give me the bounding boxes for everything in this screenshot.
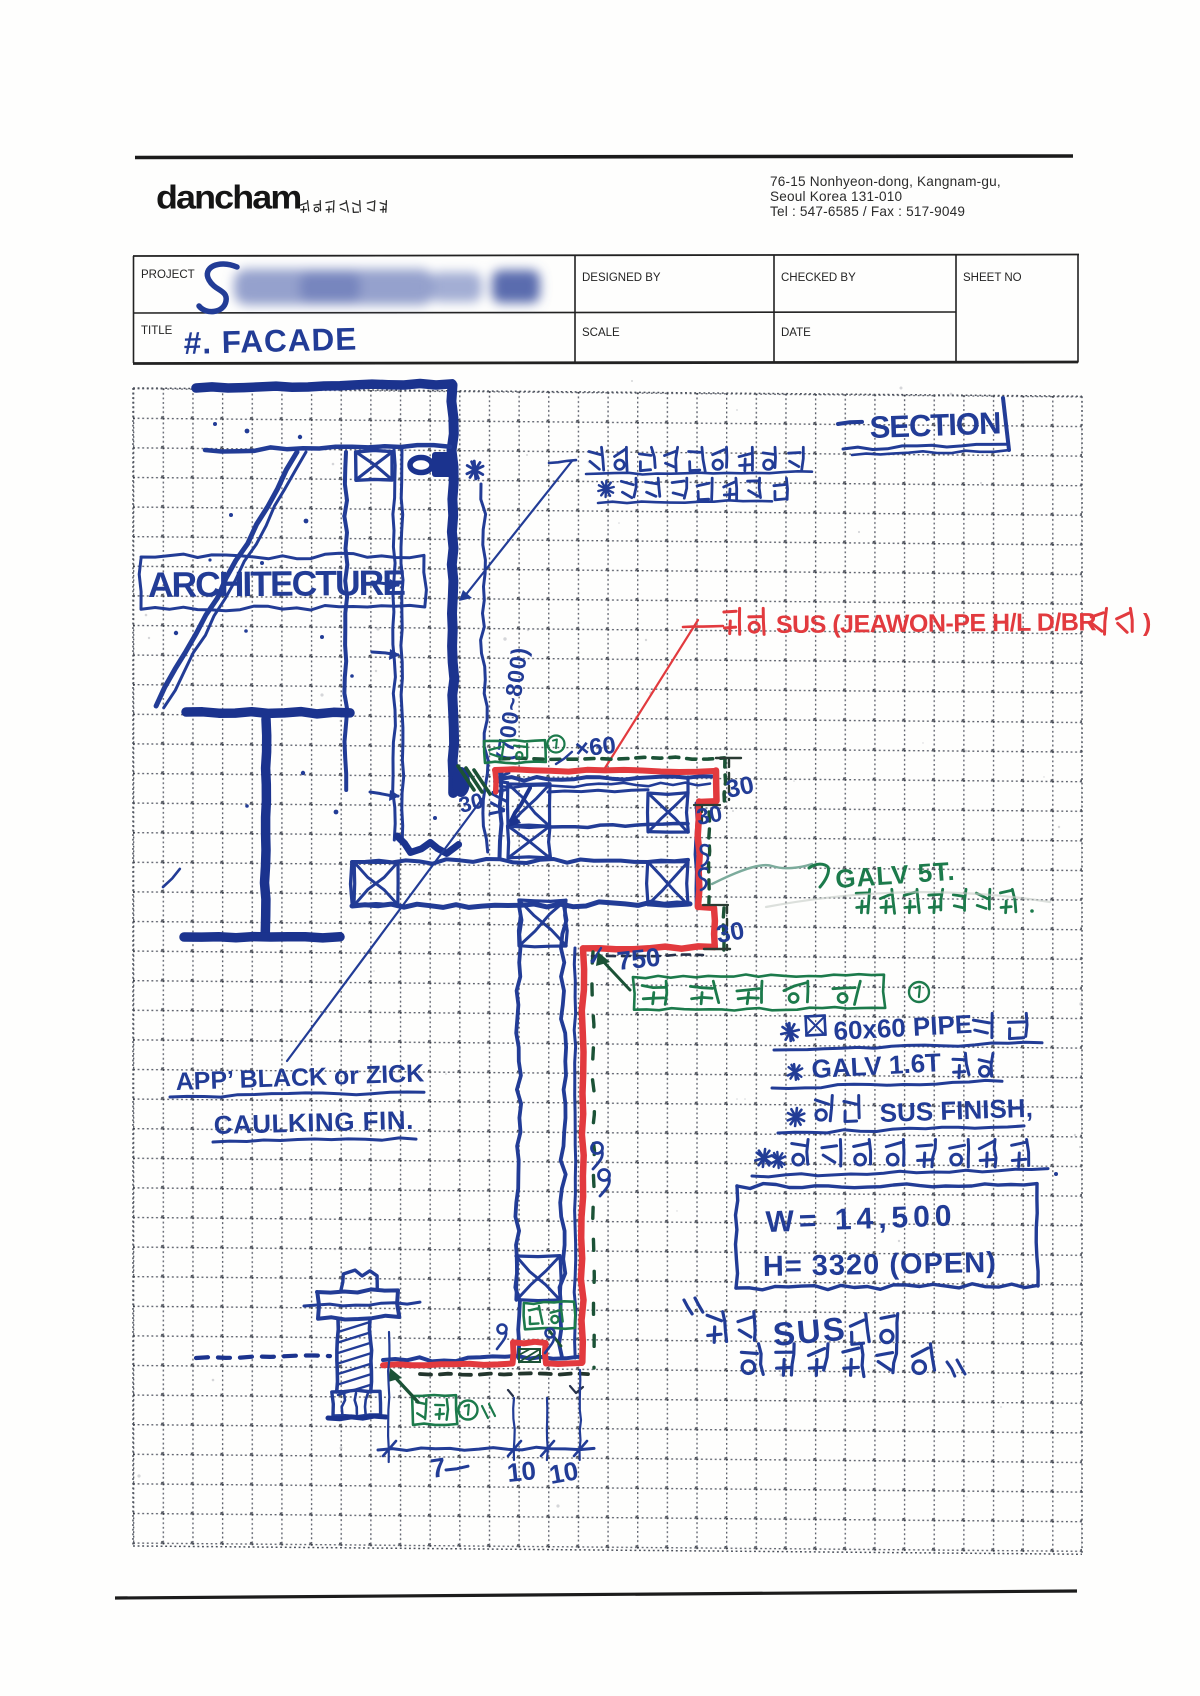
svg-text:DESIGNED BY: DESIGNED BY xyxy=(582,272,661,284)
svg-text:PROJECT: PROJECT xyxy=(141,269,195,281)
svg-text:SUS: SUS xyxy=(771,1310,848,1353)
svg-text:10: 10 xyxy=(505,1455,537,1488)
svg-text:30: 30 xyxy=(723,771,756,804)
svg-text:SUS (JEAWON-PE H/L D/BR: SUS (JEAWON-PE H/L D/BR xyxy=(776,608,1097,639)
svg-text:CHECKED BY: CHECKED BY xyxy=(781,272,856,284)
svg-text:W= 14,500: W= 14,500 xyxy=(765,1199,957,1239)
svg-text:10: 10 xyxy=(547,1455,581,1490)
svg-text:SUS FINISH,: SUS FINISH, xyxy=(879,1093,1033,1128)
svg-text:SHEET NO: SHEET NO xyxy=(963,272,1022,284)
svg-text:Tel : 547-6585 / Fax : 517-904: Tel : 547-6585 / Fax : 517-9049 xyxy=(770,204,965,219)
svg-text:TITLE: TITLE xyxy=(141,325,173,337)
svg-text:H= 3320 (OPEN): H= 3320 (OPEN) xyxy=(763,1247,998,1283)
svg-text:#. FACADE: #. FACADE xyxy=(183,320,357,361)
svg-text:ARCHITECTURE: ARCHITECTURE xyxy=(148,563,406,605)
svg-text:DATE: DATE xyxy=(781,327,811,339)
svg-text:750: 750 xyxy=(615,942,661,976)
svg-text:76-15 Nonhyeon-dong, Kangnam-g: 76-15 Nonhyeon-dong, Kangnam-gu, xyxy=(770,174,1001,189)
svg-text:Seoul Korea 131-010: Seoul Korea 131-010 xyxy=(770,189,903,204)
svg-text:×60: ×60 xyxy=(574,732,617,763)
svg-text:dancham: dancham xyxy=(156,180,300,217)
svg-text:CAULKING FIN.: CAULKING FIN. xyxy=(213,1105,414,1140)
svg-text:30: 30 xyxy=(694,800,724,830)
svg-text:SECTION: SECTION xyxy=(869,405,1001,445)
svg-text:SCALE: SCALE xyxy=(582,327,620,339)
svg-text:): ) xyxy=(1143,609,1151,637)
svg-text:30: 30 xyxy=(714,917,746,949)
